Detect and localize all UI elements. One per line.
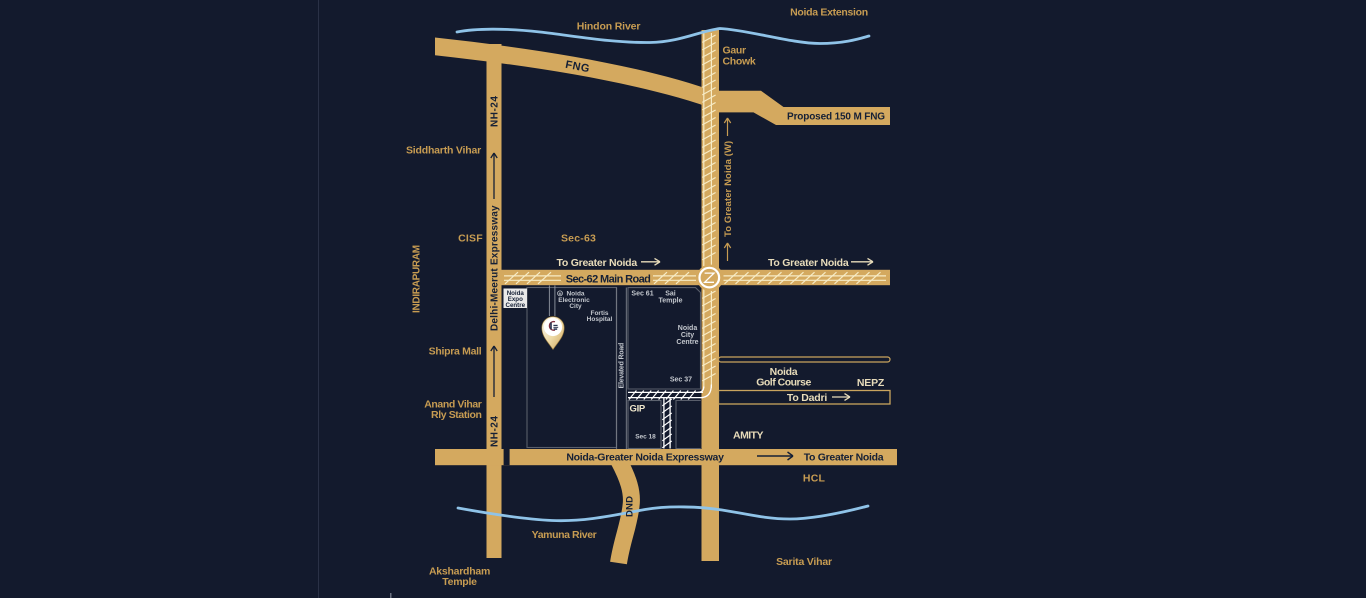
svg-text:Noida-Greater Noida Expressway: Noida-Greater Noida Expressway [566,451,724,463]
svg-text:City: City [681,332,694,339]
svg-text:GIP: GIP [630,404,646,415]
svg-text:Yamuna River: Yamuna River [532,529,597,541]
svg-text:Shipra Mall: Shipra Mall [429,346,482,358]
svg-text:Elevated Road: Elevated Road [619,343,626,389]
svg-text:Sai: Sai [665,291,676,298]
svg-text:Sec-62 Main Road: Sec-62 Main Road [566,274,651,286]
svg-text:To Greater Noida: To Greater Noida [557,257,638,269]
svg-text:Sec-63: Sec-63 [561,233,596,245]
svg-text:Sec 37: Sec 37 [670,376,692,383]
svg-text:NEPZ: NEPZ [857,377,885,389]
svg-text:Centre: Centre [676,339,698,346]
svg-text:NH-24: NH-24 [490,96,501,127]
svg-text:To Dadri: To Dadri [787,392,827,404]
svg-text:HCL: HCL [803,473,826,485]
svg-text:Sarita Vihar: Sarita Vihar [776,556,832,568]
svg-text:CISF: CISF [458,233,483,245]
svg-text:Sec 61: Sec 61 [631,291,653,298]
svg-text:Siddharth Vihar: Siddharth Vihar [406,145,481,157]
svg-text:INDIRAPURAM: INDIRAPURAM [412,245,423,313]
svg-text:To Greater Noida: To Greater Noida [804,451,884,463]
svg-text:Golf Course: Golf Course [756,377,811,389]
svg-text:Chowk: Chowk [723,56,756,68]
svg-text:Centre: Centre [505,302,525,309]
svg-text:M: M [559,292,562,296]
svg-text:City: City [569,303,582,310]
svg-text:To Greater Noida (W): To Greater Noida (W) [723,141,734,237]
svg-text:Delhi-Meerut Expressway: Delhi-Meerut Expressway [490,205,501,331]
svg-text:NH-24: NH-24 [490,416,501,447]
svg-text:Rly Station: Rly Station [431,409,481,421]
svg-text:Noida: Noida [678,325,698,332]
svg-text:Noida Extension: Noida Extension [790,7,868,19]
svg-text:Hindon River: Hindon River [577,21,641,33]
svg-text:AMITY: AMITY [733,430,763,442]
svg-text:Temple: Temple [659,298,683,305]
svg-text:DND: DND [625,496,636,517]
svg-text:To Greater Noida: To Greater Noida [768,257,849,269]
svg-text:Hospital: Hospital [587,316,613,323]
svg-text:Proposed 150 M FNG: Proposed 150 M FNG [787,112,885,123]
svg-text:Sec 18: Sec 18 [635,434,656,441]
svg-text:Temple: Temple [442,576,477,588]
